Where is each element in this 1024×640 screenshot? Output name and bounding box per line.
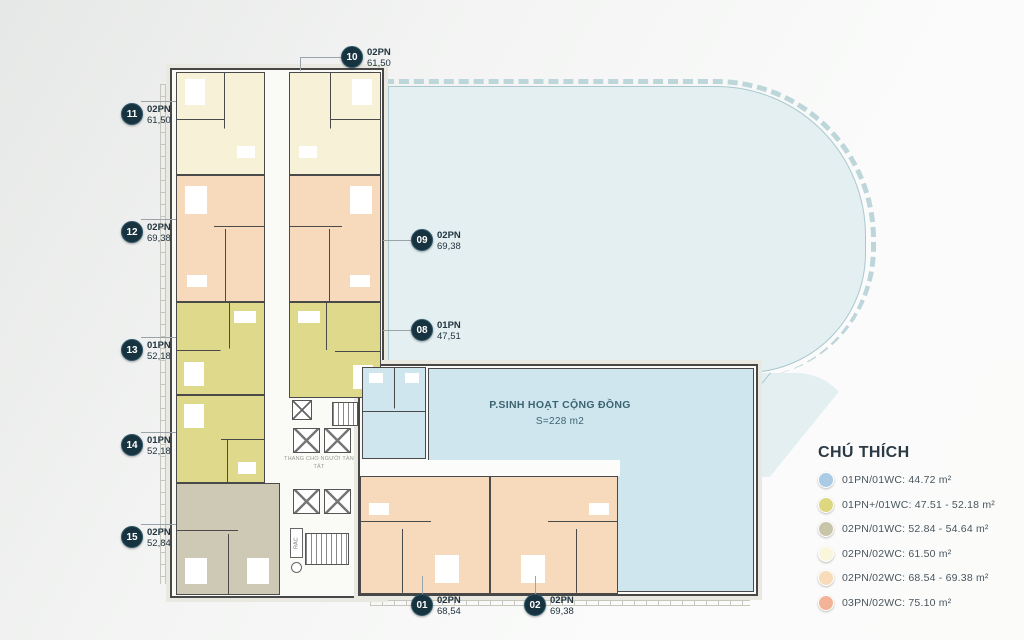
unit-type: 02PN bbox=[147, 527, 171, 538]
unit-label-text: 01PN52,18 bbox=[147, 434, 171, 457]
community-room-label: P.SINH HOẠT CỘNG ĐỒNG S=228 m2 bbox=[460, 398, 660, 429]
unit-area: 69,38 bbox=[437, 241, 461, 252]
unit-label-text: 02PN52,84 bbox=[147, 526, 171, 549]
unit-number-badge[interactable]: 02 bbox=[524, 594, 546, 616]
unit-09[interactable] bbox=[289, 175, 381, 302]
unit-area: 47,51 bbox=[437, 331, 461, 342]
leader-10b bbox=[300, 57, 301, 71]
unit-11[interactable] bbox=[176, 72, 265, 175]
leader-14 bbox=[141, 432, 176, 433]
unit-label-14[interactable]: 14 01PN52,18 bbox=[121, 434, 171, 457]
legend-item-label: 01PN/01WC: 44.72 m² bbox=[842, 474, 951, 486]
legend-swatch-cream bbox=[818, 546, 834, 562]
legend-item-label: 02PN/01WC: 52.84 - 54.64 m² bbox=[842, 523, 989, 535]
leader-01 bbox=[422, 576, 423, 594]
utility-shaft-icon bbox=[292, 400, 312, 420]
unit-type: 02PN bbox=[437, 595, 461, 606]
unit-area: 69,38 bbox=[147, 233, 171, 244]
legend-item-label: 01PN+/01WC: 47.51 - 52.18 m² bbox=[842, 499, 995, 511]
unit-label-10[interactable]: 10 02PN61,50 bbox=[341, 46, 391, 69]
legend-item: 01PN/01WC: 44.72 m² bbox=[818, 472, 1018, 488]
unit-label-15[interactable]: 15 02PN52,84 bbox=[121, 526, 171, 549]
unit-label-text: 02PN68,54 bbox=[437, 594, 461, 617]
leader-12 bbox=[141, 219, 176, 220]
unit-type: 01PN bbox=[147, 340, 171, 351]
unit-label-11[interactable]: 11 02PN61,50 bbox=[121, 103, 171, 126]
community-room-name: P.SINH HOẠT CỘNG ĐỒNG bbox=[489, 399, 630, 411]
leader-15 bbox=[141, 524, 176, 525]
unit-type: 01PN bbox=[147, 435, 171, 446]
elevator-3 bbox=[293, 489, 320, 514]
unit-13[interactable] bbox=[176, 302, 265, 395]
unit-label-text: 02PN61,50 bbox=[147, 103, 171, 126]
legend-swatch-yellow bbox=[818, 497, 834, 513]
unit-number-badge[interactable]: 10 bbox=[341, 46, 363, 68]
unit-label-12[interactable]: 12 02PN69,38 bbox=[121, 221, 171, 244]
stairs-lower bbox=[305, 533, 349, 565]
leader-02 bbox=[535, 576, 536, 594]
legend-item-label: 02PN/02WC: 68.54 - 69.38 m² bbox=[842, 572, 989, 584]
unit-10[interactable] bbox=[289, 72, 381, 175]
unit-number-badge[interactable]: 08 bbox=[411, 319, 433, 341]
floor-plan-page: P.SINH HOẠT CỘNG ĐỒNG S=228 m2 THANG CHO… bbox=[0, 0, 1024, 640]
legend-item-label: 03PN/02WC: 75.10 m² bbox=[842, 597, 951, 609]
unit-label-01[interactable]: 01 02PN68,54 bbox=[411, 594, 461, 617]
unit-type: 02PN bbox=[367, 47, 391, 58]
leader-13 bbox=[141, 337, 176, 338]
leader-10 bbox=[300, 57, 342, 58]
legend-item: 02PN/01WC: 52.84 - 54.64 m² bbox=[818, 521, 1018, 537]
unit-number-badge[interactable]: 14 bbox=[121, 434, 143, 456]
unit-area: 52,18 bbox=[147, 446, 171, 457]
unit-area: 68,54 bbox=[437, 606, 461, 617]
unit-number-badge[interactable]: 15 bbox=[121, 526, 143, 548]
unit-type: 02PN bbox=[147, 222, 171, 233]
stairs-upper bbox=[332, 402, 358, 426]
unit-number-badge[interactable]: 12 bbox=[121, 221, 143, 243]
unit-label-text: 02PN69,38 bbox=[147, 221, 171, 244]
unit-01[interactable] bbox=[360, 476, 490, 594]
unit-label-text: 01PN52,18 bbox=[147, 339, 171, 362]
elevator-2 bbox=[324, 428, 351, 453]
legend-swatch-blue bbox=[818, 472, 834, 488]
unit-12[interactable] bbox=[176, 175, 265, 302]
legend-item: 02PN/02WC: 68.54 - 69.38 m² bbox=[818, 570, 1018, 586]
unit-label-text: 02PN61,50 bbox=[367, 46, 391, 69]
unit-label-02[interactable]: 02 02PN69,38 bbox=[524, 594, 574, 617]
elevator-1 bbox=[293, 428, 320, 453]
unit-type: 01PN bbox=[437, 320, 461, 331]
unit-number-badge[interactable]: 11 bbox=[121, 103, 143, 125]
unit-area: 69,38 bbox=[550, 606, 574, 617]
unit-number-badge[interactable]: 01 bbox=[411, 594, 433, 616]
unit-area: 61,50 bbox=[147, 115, 171, 126]
legend-item: 03PN/02WC: 75.10 m² bbox=[818, 595, 1018, 611]
leader-09 bbox=[383, 240, 411, 241]
legend-item-label: 02PN/02WC: 61.50 m² bbox=[842, 548, 951, 560]
unit-label-text: 01PN47,51 bbox=[437, 319, 461, 342]
balcony-strip-left bbox=[160, 84, 166, 584]
restroom-block bbox=[362, 367, 426, 459]
unit-area: 52,84 bbox=[147, 538, 171, 549]
legend-swatch-salmon bbox=[818, 595, 834, 611]
unit-15[interactable] bbox=[176, 483, 280, 595]
trash-chute-icon bbox=[291, 562, 302, 573]
unit-label-09[interactable]: 09 02PN69,38 bbox=[411, 229, 461, 252]
unit-type: 02PN bbox=[437, 230, 461, 241]
legend-swatch-peach bbox=[818, 570, 834, 586]
legend-title: CHÚ THÍCH bbox=[818, 444, 1018, 462]
community-room-area: S=228 m2 bbox=[460, 414, 660, 429]
legend-item: 01PN+/01WC: 47.51 - 52.18 m² bbox=[818, 497, 1018, 513]
unit-type: 02PN bbox=[147, 104, 171, 115]
unit-number-badge[interactable]: 09 bbox=[411, 229, 433, 251]
accessible-elevator-note: THANG CHO NGƯỜI TÀN TẬT bbox=[284, 455, 354, 472]
unit-area: 61,50 bbox=[367, 58, 391, 69]
corridor bbox=[360, 460, 620, 476]
unit-14[interactable] bbox=[176, 395, 265, 483]
legend-item: 02PN/02WC: 61.50 m² bbox=[818, 546, 1018, 562]
elevator-4 bbox=[324, 489, 351, 514]
unit-02[interactable] bbox=[490, 476, 618, 594]
legend-swatch-gray bbox=[818, 521, 834, 537]
unit-area: 52,18 bbox=[147, 351, 171, 362]
legend: CHÚ THÍCH 01PN/01WC: 44.72 m² 01PN+/01WC… bbox=[818, 444, 1018, 619]
unit-type: 02PN bbox=[550, 595, 574, 606]
unit-label-08[interactable]: 08 01PN47,51 bbox=[411, 319, 461, 342]
unit-number-badge[interactable]: 13 bbox=[121, 339, 143, 361]
unit-label-text: 02PN69,38 bbox=[550, 594, 574, 617]
unit-label-text: 02PN69,38 bbox=[437, 229, 461, 252]
unit-label-13[interactable]: 13 01PN52,18 bbox=[121, 339, 171, 362]
trash-chute-label: RÁC bbox=[290, 528, 303, 558]
leader-08 bbox=[383, 330, 411, 331]
leader-11 bbox=[141, 101, 176, 102]
